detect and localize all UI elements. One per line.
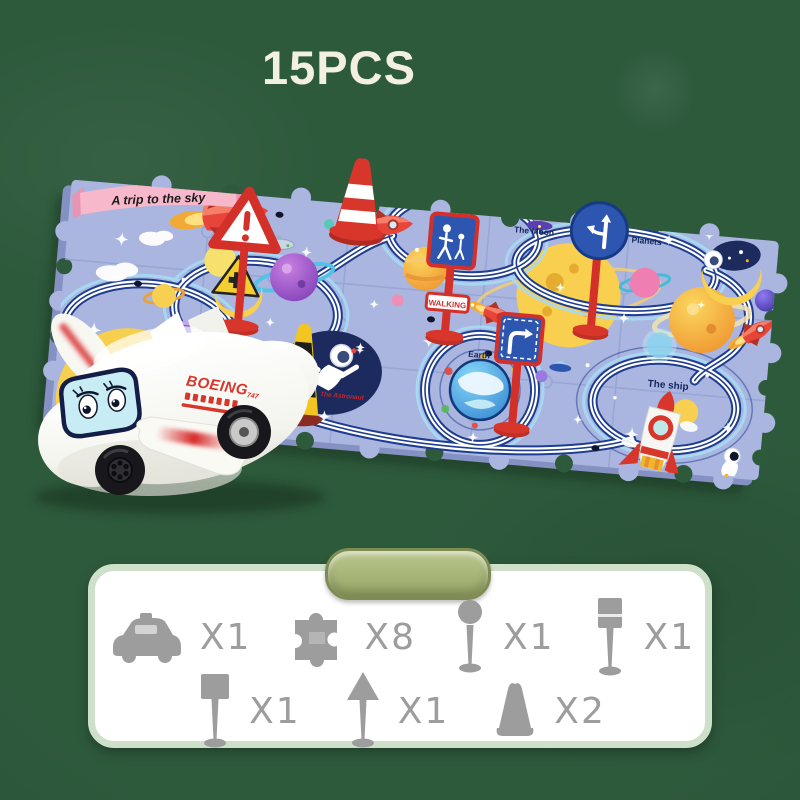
- part-square-sign: X1: [194, 672, 301, 750]
- part-count: X1: [249, 691, 301, 732]
- parts-row-1: X1 X8 X1: [95, 601, 705, 673]
- square-sign-icon: [194, 672, 236, 750]
- parts-list-panel: X1 X8 X1: [88, 564, 712, 748]
- panel-tab: [325, 548, 491, 600]
- playmat-scene: Earth The ship: [0, 0, 800, 560]
- toy-cone-red-white: [328, 156, 389, 248]
- product-image: 15PCS: [0, 0, 800, 800]
- parts-row-2: X1 X1 X2: [95, 675, 705, 747]
- part-count: X1: [398, 691, 450, 732]
- part-traffic-cone: X2: [489, 680, 606, 742]
- puzzle-piece-icon: [285, 604, 351, 670]
- part-count: X1: [644, 617, 696, 658]
- arrow-sign-icon: [341, 670, 385, 752]
- toy-car-icon: [105, 611, 187, 663]
- part-toy-car: X1: [105, 611, 252, 663]
- part-count: X2: [554, 691, 606, 732]
- round-sign-icon: [450, 599, 490, 675]
- traffic-cone-icon: [489, 680, 541, 742]
- part-count: X8: [364, 617, 416, 658]
- part-round-sign: X1: [450, 599, 555, 675]
- part-count: X1: [200, 617, 252, 658]
- barrier-sign-icon: [589, 596, 631, 678]
- rear-wheel: [217, 405, 271, 459]
- earth-label: Earth: [468, 349, 491, 361]
- plane-face: [60, 369, 141, 437]
- part-arrow-sign: X1: [341, 670, 450, 752]
- part-barrier-sign: X1: [589, 596, 696, 678]
- part-count: X1: [503, 617, 555, 658]
- part-puzzle-piece: X8: [285, 604, 416, 670]
- front-wheel: [95, 445, 145, 495]
